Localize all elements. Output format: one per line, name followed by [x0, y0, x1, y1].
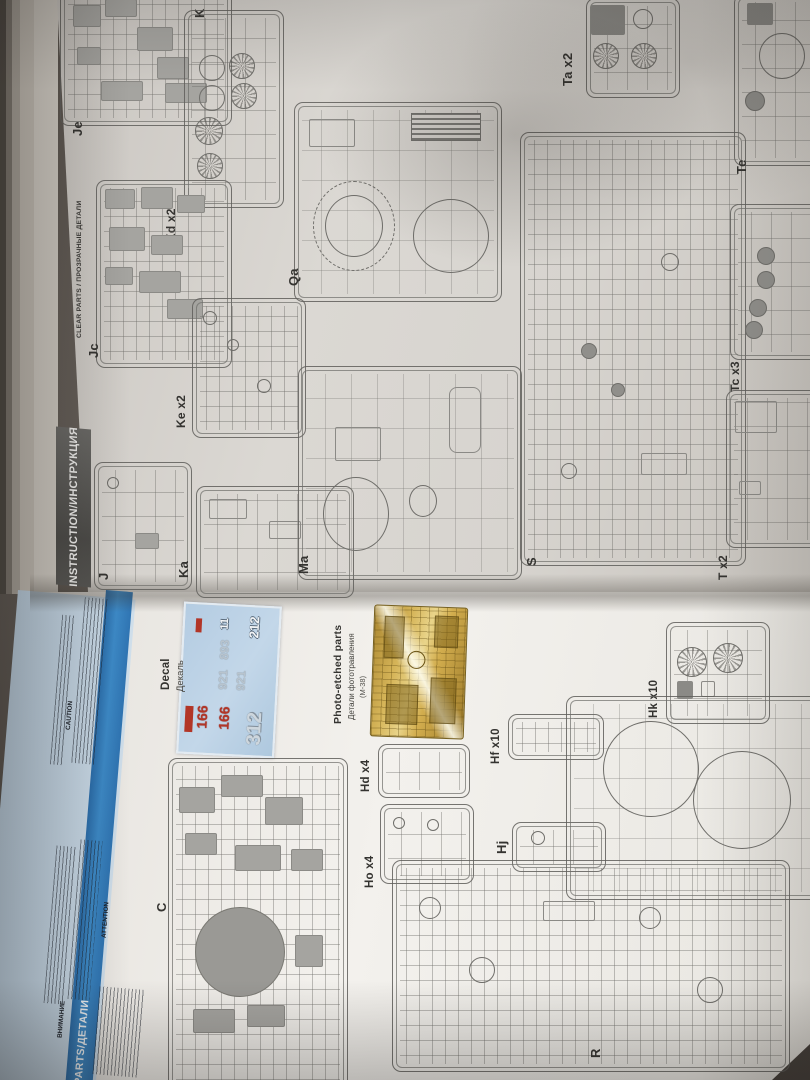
decal-number: 893 — [217, 633, 232, 660]
etched-part — [383, 616, 404, 659]
decal-number: 312 — [243, 645, 271, 746]
wheel-part — [713, 643, 743, 673]
gray-part — [139, 271, 181, 293]
sprocket-part — [591, 5, 625, 35]
part-circle — [611, 383, 625, 397]
wheel-part — [759, 33, 805, 79]
decal-number: 921 — [215, 663, 230, 690]
parts-section-stripe-label: PARTS/ДЕТАЛИ — [72, 999, 91, 1080]
part-circle — [633, 9, 653, 29]
sprue-ka-label: Ka — [176, 552, 191, 578]
part-circle — [419, 897, 441, 919]
wheel-part — [745, 321, 763, 339]
sprue-qa-label: Qa — [286, 262, 301, 286]
sprue-jc-label: Jc — [86, 336, 101, 358]
gray-part — [295, 935, 323, 967]
sprue-r-label: R — [588, 1038, 603, 1058]
gray-part — [105, 0, 137, 17]
sprocket-part — [593, 43, 619, 69]
part-circle — [745, 91, 765, 111]
part-shape — [701, 681, 715, 697]
etched-part — [385, 684, 418, 725]
turret-ring-part — [195, 907, 285, 997]
sprue-hd-label: Hd x4 — [360, 748, 372, 792]
sprue-t-label: T x2 — [716, 536, 730, 580]
decal-number: 166 — [193, 698, 211, 729]
gray-part — [179, 787, 215, 813]
gray-part — [221, 775, 263, 797]
turret-ring-part — [325, 195, 383, 257]
part-circle — [639, 907, 661, 929]
sprue-ta — [586, 0, 680, 98]
gray-part — [247, 1005, 285, 1027]
sprue-hf-label: Hf x10 — [490, 716, 502, 764]
wheel-part — [677, 647, 707, 677]
gray-part — [141, 187, 173, 209]
part-circle — [227, 339, 239, 351]
decal-sheet: 212 11 893 921 921 166 166 312 — [176, 602, 282, 759]
gray-part — [105, 189, 135, 209]
gray-part — [265, 797, 303, 825]
clear-parts-header: CLEAR PARTS / ПРОЗРАЧНЫЕ ДЕТАЛИ — [76, 232, 83, 338]
part-circle — [427, 819, 439, 831]
sprue-s-label: S — [524, 548, 539, 566]
part-circle — [257, 379, 271, 393]
wheel-ring-part — [603, 721, 699, 817]
part-circle — [107, 477, 119, 489]
sprocket-part — [229, 53, 255, 79]
part-circle — [199, 85, 225, 111]
part-shape — [335, 427, 381, 461]
sprocket-part — [231, 83, 257, 109]
sprue-tc-label: Tc x3 — [728, 346, 742, 392]
sprue-ma-label: Ma — [296, 548, 311, 574]
decal-maker-mark — [195, 618, 202, 632]
decal-maker-mark — [184, 706, 193, 732]
sprue-je-label: Je — [70, 112, 85, 136]
gray-part — [105, 267, 133, 285]
gray-part — [185, 833, 217, 855]
decal-label-ru: Декаль — [175, 666, 186, 692]
radiator-grille-part — [411, 113, 481, 141]
gray-part — [73, 5, 101, 27]
sprocket-part — [195, 117, 223, 145]
photo-etch-fret — [370, 604, 469, 739]
gray-part — [137, 27, 173, 51]
sprue-ta-label: Ta x2 — [560, 36, 575, 86]
page-stack-edge — [0, 0, 58, 594]
gray-part — [177, 195, 205, 213]
part-shape — [543, 901, 595, 921]
wheel-part — [749, 299, 767, 317]
part-circle — [199, 55, 225, 81]
part-shape — [309, 119, 355, 147]
sprue-te — [734, 0, 810, 166]
part-circle — [393, 817, 405, 829]
sprue-tc — [730, 204, 810, 360]
sprue-t — [726, 390, 810, 548]
etched-part — [434, 616, 459, 649]
gray-part — [109, 227, 145, 251]
sprue-hd — [378, 744, 470, 798]
part-circle — [581, 343, 597, 359]
gray-part — [193, 1009, 235, 1033]
sprue-ma — [298, 366, 522, 580]
sprue-c — [168, 758, 348, 1080]
fine-print-block — [92, 986, 145, 1077]
wheel-ring-part — [693, 751, 791, 849]
part-circle — [469, 957, 495, 983]
part-circle — [561, 463, 577, 479]
wheel-part — [757, 271, 775, 289]
gray-part — [101, 81, 143, 101]
sprue-qa — [294, 102, 502, 302]
photo-etched-label-ru: Детали фототравления — [347, 618, 356, 720]
gray-part — [291, 849, 323, 871]
sprue-s — [520, 132, 746, 566]
part-shape — [209, 499, 247, 519]
photo-etched-label-en: Photo-etched parts — [332, 612, 344, 724]
part-shape — [739, 481, 761, 495]
instruction-banner-label: INSTRUCTION/ИНСТРУКЦИЯ — [68, 427, 80, 588]
sprue-ke — [192, 298, 306, 438]
sprue-hj-label: Hj — [494, 830, 509, 854]
sprue-te-label: Te — [734, 150, 749, 174]
photo-scene: PARTS/ДЕТАЛИ Je K Kd x2 Qa — [0, 0, 810, 1080]
part-circle — [409, 485, 437, 517]
sprue-c-label: C — [154, 892, 169, 912]
instruction-banner: INSTRUCTION/ИНСТРУКЦИЯ — [56, 426, 91, 587]
turret-ring-part — [323, 477, 389, 551]
part-circle — [661, 253, 679, 271]
sprue-ho-label: Ho x4 — [364, 840, 376, 888]
etched-part — [407, 651, 426, 670]
part-shape — [269, 521, 301, 539]
sprue-kd — [184, 10, 284, 208]
part-circle — [697, 977, 723, 1003]
part-shape — [641, 453, 687, 475]
part-shape — [449, 387, 481, 453]
decal-number: 212 — [246, 610, 262, 639]
sprocket-part — [197, 153, 223, 179]
turret-ring-part — [413, 199, 489, 273]
sprue-j-label: J — [96, 564, 111, 580]
gray-part — [235, 845, 281, 871]
etched-part — [429, 677, 457, 724]
part-shape — [735, 401, 777, 433]
gray-part — [135, 533, 159, 549]
photo-etched-code: (М-38) — [358, 652, 367, 698]
gray-part — [151, 235, 183, 255]
gray-part — [747, 3, 773, 25]
gray-part — [77, 47, 101, 65]
sprocket-part — [631, 43, 657, 69]
decal-number: 166 — [215, 699, 233, 730]
sprue-ke-label: Ke x2 — [174, 388, 188, 428]
decal-number: 11 — [219, 609, 232, 630]
part-circle — [203, 311, 217, 325]
part-circle — [531, 831, 545, 845]
decal-label-en: Decal — [160, 662, 172, 690]
wheel-part — [757, 247, 775, 265]
